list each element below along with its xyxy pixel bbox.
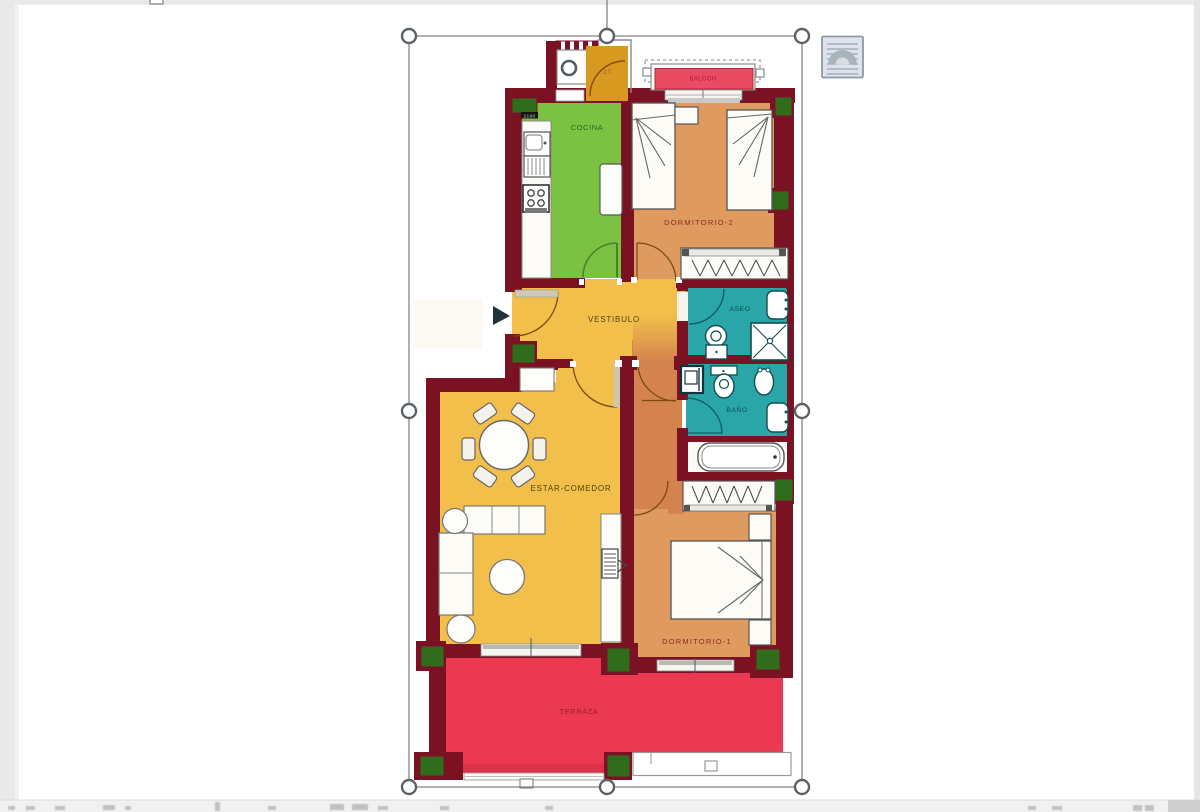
svg-text:BAÑO: BAÑO [726, 405, 747, 414]
svg-text:2190: 2190 [524, 113, 536, 119]
svg-text:VESTIBULO: VESTIBULO [588, 315, 640, 324]
svg-text:ESTAR-COMEDOR: ESTAR-COMEDOR [531, 484, 612, 493]
svg-text:TERRAZA: TERRAZA [559, 707, 598, 716]
svg-text:BALCON: BALCON [689, 77, 716, 83]
svg-text:ASEO: ASEO [730, 306, 751, 313]
svg-text:J.T: J.T [603, 70, 612, 76]
svg-text:COCINA: COCINA [571, 123, 604, 132]
svg-text:DORMITORIO-2: DORMITORIO-2 [664, 218, 734, 227]
svg-text:DORMITORIO-1: DORMITORIO-1 [662, 637, 732, 646]
